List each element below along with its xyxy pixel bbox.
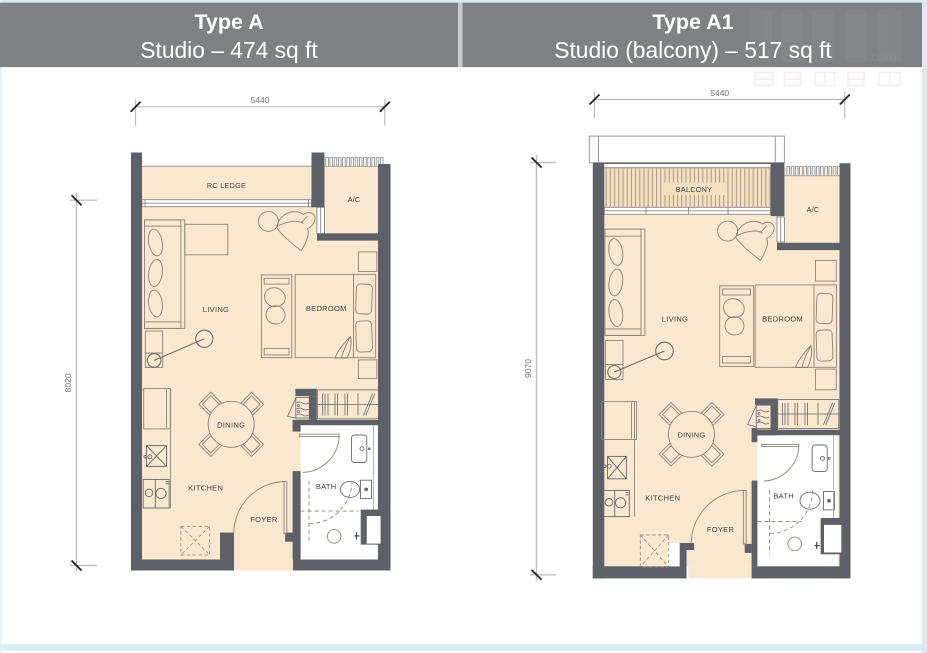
svg-text:Studio – 474 sq ft: Studio – 474 sq ft xyxy=(140,37,318,63)
svg-text:RC LEDGE: RC LEDGE xyxy=(207,181,246,190)
svg-text:9070: 9070 xyxy=(523,359,533,378)
svg-text:A/C: A/C xyxy=(807,205,820,214)
svg-text:LIVING: LIVING xyxy=(662,315,688,324)
svg-text:5440: 5440 xyxy=(710,88,729,98)
svg-text:KITCHEN: KITCHEN xyxy=(188,484,223,493)
svg-text:Type A1: Type A1 xyxy=(652,10,733,34)
svg-text:5440: 5440 xyxy=(251,95,270,105)
svg-text:Type A: Type A xyxy=(194,10,263,34)
svg-text:LIVING: LIVING xyxy=(203,305,229,314)
svg-text:BEDROOM: BEDROOM xyxy=(762,315,803,324)
svg-text:A/C: A/C xyxy=(348,195,361,204)
svg-text:DINING: DINING xyxy=(217,420,245,429)
svg-text:BEDROOM: BEDROOM xyxy=(306,304,347,313)
svg-text:KITCHEN: KITCHEN xyxy=(645,494,680,503)
svg-text:.com: .com xyxy=(867,49,896,64)
svg-text:DINING: DINING xyxy=(677,430,705,439)
svg-text:FOYER: FOYER xyxy=(250,515,278,524)
svg-text:BATH: BATH xyxy=(316,482,337,491)
svg-text:BATH: BATH xyxy=(773,492,794,501)
svg-text:8020: 8020 xyxy=(63,373,73,392)
svg-text:FOYER: FOYER xyxy=(707,525,735,534)
svg-text:BALCONY: BALCONY xyxy=(676,185,712,194)
